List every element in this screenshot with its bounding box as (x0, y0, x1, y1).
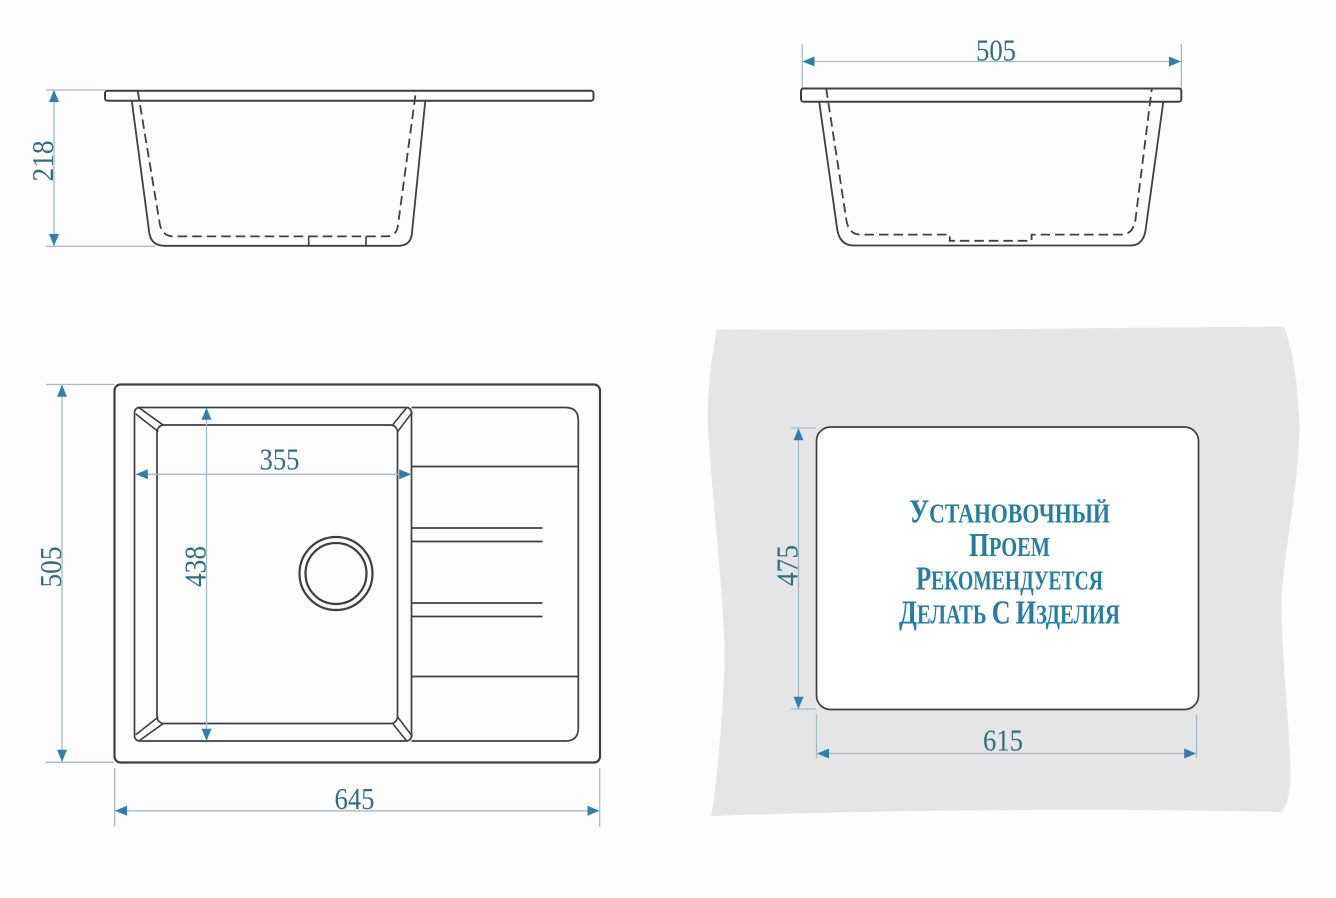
svg-text:218: 218 (25, 141, 60, 182)
svg-text:475: 475 (770, 545, 805, 586)
svg-text:УСТАНОВОЧНЫЙ: УСТАНОВОЧНЫЙ (909, 494, 1110, 531)
svg-text:645: 645 (335, 781, 375, 816)
svg-text:615: 615 (983, 723, 1023, 758)
svg-text:РЕКОМЕНДУЕТСЯ: РЕКОМЕНДУЕТСЯ (916, 561, 1103, 598)
svg-text:438: 438 (178, 546, 213, 587)
svg-text:ПРОЕМ: ПРОЕМ (969, 527, 1050, 564)
svg-text:505: 505 (33, 547, 68, 588)
svg-text:505: 505 (976, 33, 1016, 68)
svg-text:ДЕЛАТЬ С ИЗДЕЛИЯ: ДЕЛАТЬ С ИЗДЕЛИЯ (899, 595, 1120, 632)
svg-text:355: 355 (260, 442, 300, 477)
